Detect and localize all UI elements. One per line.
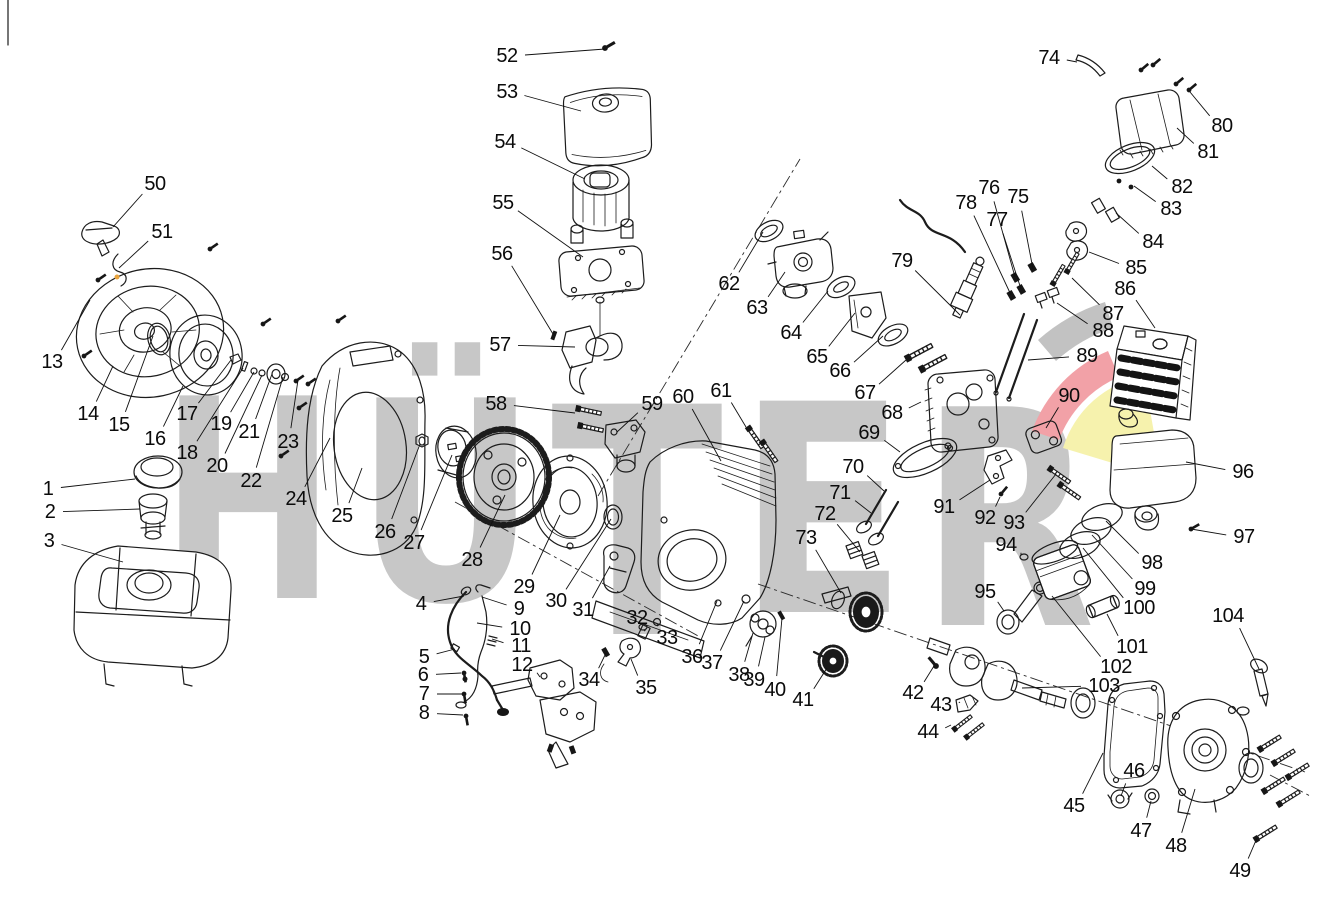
part-number: 48 (1165, 835, 1187, 857)
part-callout-32: 32 (626, 607, 648, 631)
part-number: 9 (514, 598, 525, 620)
part-number: 84 (1142, 231, 1164, 253)
cover-bolts-49 (1252, 734, 1309, 843)
part-number: 41 (792, 689, 814, 711)
leader-line (829, 313, 855, 346)
part-number: 55 (492, 192, 514, 214)
part-callout-78: 78 (955, 192, 1011, 295)
leader-line (1116, 213, 1139, 233)
part-number: 54 (494, 131, 516, 153)
part-number: 81 (1197, 141, 1219, 163)
leader-line (1089, 252, 1119, 264)
part-callout-45: 45 (1063, 753, 1103, 817)
leader-line (1191, 529, 1226, 535)
part-number: 35 (635, 677, 657, 699)
heat-shield (849, 292, 886, 338)
throttle-screws (461, 670, 470, 726)
leader-line (63, 509, 140, 512)
part-callout-98: 98 (1106, 521, 1163, 574)
part-number: 21 (238, 421, 260, 443)
part-callout-104: 104 (1212, 605, 1259, 669)
part-number: 13 (41, 351, 63, 373)
leader-line (61, 479, 135, 488)
part-number: 2 (45, 501, 56, 523)
part-number: 101 (1116, 636, 1148, 658)
part-number: 72 (814, 503, 836, 525)
rocker-pivots-88 (1035, 287, 1059, 308)
valve-keepers (1117, 179, 1134, 190)
part-number: 27 (403, 532, 425, 554)
part-number: 100 (1123, 597, 1155, 619)
part-callout-63: 63 (746, 272, 785, 319)
leader-line (959, 702, 960, 703)
part-callout-33: 33 (656, 624, 678, 649)
carb-gasket-64 (824, 272, 859, 302)
part-number: 28 (461, 549, 483, 571)
leader-line (1248, 838, 1257, 859)
part-number: 53 (496, 81, 518, 103)
part-number: 51 (151, 221, 173, 243)
leader-line (1152, 166, 1167, 179)
part-number: 88 (1092, 320, 1114, 342)
spark-plug (900, 200, 990, 320)
part-number: 14 (77, 403, 99, 425)
part-callout-54: 54 (494, 131, 585, 179)
cover-gasket-82 (1101, 136, 1159, 180)
leader-line (1134, 186, 1156, 202)
part-number: 69 (858, 422, 880, 444)
oil-dipstick (1237, 656, 1270, 715)
part-number: 39 (743, 669, 765, 691)
part-number: 4 (416, 593, 427, 615)
part-number: 78 (955, 192, 977, 214)
part-callout-74: 74 (1038, 47, 1077, 69)
part-number: 1 (43, 478, 54, 500)
leader-line (1067, 60, 1077, 62)
part-number: 33 (656, 627, 678, 649)
watermark-letter-1: Ü (356, 339, 536, 666)
leader-line (525, 49, 605, 55)
part-number: 47 (1130, 820, 1152, 842)
part-callout-101: 101 (1107, 614, 1148, 658)
leader-line (1072, 278, 1100, 305)
part-number: 3 (44, 530, 55, 552)
part-number: 76 (978, 177, 1000, 199)
part-number: 57 (489, 334, 511, 356)
air-filter-screw (601, 40, 616, 52)
part-number: 24 (285, 488, 307, 510)
part-number: 83 (1160, 198, 1182, 220)
part-callout-97: 97 (1191, 526, 1255, 548)
part-callout-75: 75 (1007, 186, 1033, 269)
part-callout-64: 64 (780, 291, 828, 344)
part-number: 80 (1211, 115, 1233, 137)
part-callout-85: 85 (1089, 252, 1147, 279)
part-number: 19 (210, 413, 232, 435)
leader-line (1083, 753, 1103, 794)
part-number: 86 (1114, 278, 1136, 300)
part-number: 50 (144, 173, 166, 195)
part-number: 97 (1233, 526, 1255, 548)
part-number: 37 (701, 652, 723, 674)
part-number: 49 (1229, 860, 1251, 882)
part-number: 56 (491, 243, 513, 265)
leader-line (113, 194, 142, 227)
part-number: 45 (1063, 795, 1085, 817)
part-number: 65 (806, 346, 828, 368)
part-callout-44: 44 (917, 721, 951, 743)
part-number: 75 (1007, 186, 1029, 208)
crankcase-cover (1168, 699, 1250, 814)
part-callout-51: 51 (119, 221, 173, 268)
part-callout-56: 56 (491, 243, 553, 334)
part-number: 22 (240, 470, 262, 492)
part-number: 96 (1232, 461, 1254, 483)
part-callout-43: 43 (930, 694, 960, 716)
part-number: 63 (746, 297, 768, 319)
part-number: 44 (917, 721, 939, 743)
part-number: 46 (1123, 760, 1145, 782)
part-number: 79 (891, 250, 913, 272)
part-callout-82: 82 (1152, 166, 1193, 198)
leader-line (1190, 92, 1210, 116)
carburetor (768, 230, 833, 298)
part-number: 42 (902, 682, 924, 704)
valve-cover-screws (1138, 57, 1198, 93)
shroud-screw-97 (1188, 522, 1201, 532)
part-number: 20 (206, 455, 228, 477)
part-number: 62 (718, 273, 740, 295)
part-number: 68 (881, 402, 903, 424)
part-number: 17 (176, 403, 198, 425)
part-number: 95 (974, 581, 996, 603)
part-number: 52 (496, 45, 518, 67)
part-number: 36 (681, 646, 703, 668)
part-number: 40 (764, 679, 786, 701)
part-callout-47: 47 (1130, 801, 1152, 842)
part-number: 61 (710, 380, 732, 402)
spring-retainers (1092, 198, 1120, 222)
part-number: 43 (930, 694, 952, 716)
part-callout-62: 62 (718, 232, 763, 295)
leader-line (644, 630, 646, 631)
part-callout-84: 84 (1116, 213, 1164, 253)
leader-line (803, 291, 828, 323)
part-number: 30 (545, 590, 567, 612)
case-bolts-44 (951, 714, 985, 741)
leader-line (1106, 521, 1139, 554)
leader-line (119, 241, 148, 268)
part-number: 91 (933, 496, 955, 518)
fuel-tank (74, 546, 231, 686)
part-number: 93 (1003, 512, 1025, 534)
leader-line (125, 336, 153, 412)
insulator-gasket-62 (752, 216, 787, 246)
part-number: 85 (1125, 257, 1147, 279)
leader-line (1022, 211, 1033, 269)
part-number: 25 (331, 505, 353, 527)
part-number: 67 (854, 382, 876, 404)
leader-line (512, 266, 553, 334)
part-callout-52: 52 (496, 45, 605, 67)
breather-tube (1076, 55, 1105, 76)
leader-line (909, 402, 921, 408)
part-number: 12 (511, 654, 533, 676)
part-number: 89 (1076, 345, 1098, 367)
muffler-protector (1110, 430, 1196, 530)
valve-cover (1116, 90, 1184, 158)
air-filter-element (573, 165, 629, 231)
leader-line (1177, 128, 1194, 143)
leader-line (61, 300, 90, 350)
part-callout-15: 15 (108, 336, 153, 436)
part-number: 15 (108, 414, 130, 436)
part-number: 29 (513, 576, 535, 598)
part-number: 60 (672, 386, 694, 408)
part-number: 98 (1141, 552, 1163, 574)
part-number: 59 (641, 393, 663, 415)
part-number: 103 (1088, 675, 1120, 697)
exploded-parts-diagram: HÜTER (0, 0, 1339, 912)
part-number: 74 (1038, 47, 1060, 69)
leader-line (1147, 801, 1151, 818)
leader-line (1136, 300, 1155, 328)
leader-line (436, 673, 461, 674)
part-number: 77 (986, 209, 1008, 231)
part-callout-1: 1 (43, 478, 135, 500)
part-number: 23 (277, 431, 299, 453)
leader-line (915, 271, 960, 316)
part-number: 8 (419, 702, 430, 724)
part-callout-80: 80 (1190, 92, 1233, 137)
leader-line (1240, 628, 1259, 669)
air-filter-cover (562, 85, 655, 168)
part-number: 94 (995, 534, 1017, 556)
leader-line (96, 366, 113, 402)
leader-line (1003, 233, 1021, 289)
part-number: 90 (1058, 385, 1080, 407)
leader-line (524, 96, 581, 112)
part-number: 31 (572, 599, 594, 621)
leader-line (1107, 614, 1118, 636)
part-number: 32 (626, 607, 648, 629)
part-number: 82 (1171, 176, 1193, 198)
part-number: 34 (578, 669, 600, 691)
oil-drain-cap (1108, 790, 1132, 808)
leader-line (437, 714, 463, 715)
part-callout-2: 2 (45, 501, 140, 523)
part-number: 71 (829, 482, 851, 504)
starter-rope (113, 254, 126, 286)
drain-washer (1145, 789, 1159, 803)
part-number: 70 (842, 456, 864, 478)
part-number: 16 (144, 428, 166, 450)
leader-line (739, 232, 763, 272)
part-number: 64 (780, 322, 802, 344)
part-number: 92 (974, 507, 996, 529)
part-number: 58 (485, 393, 507, 415)
part-callout-79: 79 (891, 250, 960, 315)
part-callout-68: 68 (881, 402, 921, 424)
part-number: 66 (829, 360, 851, 382)
tappets-43 (956, 695, 978, 712)
leader-line (945, 725, 951, 728)
part-callout-49: 49 (1229, 838, 1257, 882)
part-callout-50: 50 (113, 173, 166, 227)
part-number: 73 (795, 527, 817, 549)
leader-line (537, 673, 540, 677)
part-number: 104 (1212, 605, 1244, 627)
part-number: 26 (374, 521, 396, 543)
part-number: 18 (176, 442, 198, 464)
